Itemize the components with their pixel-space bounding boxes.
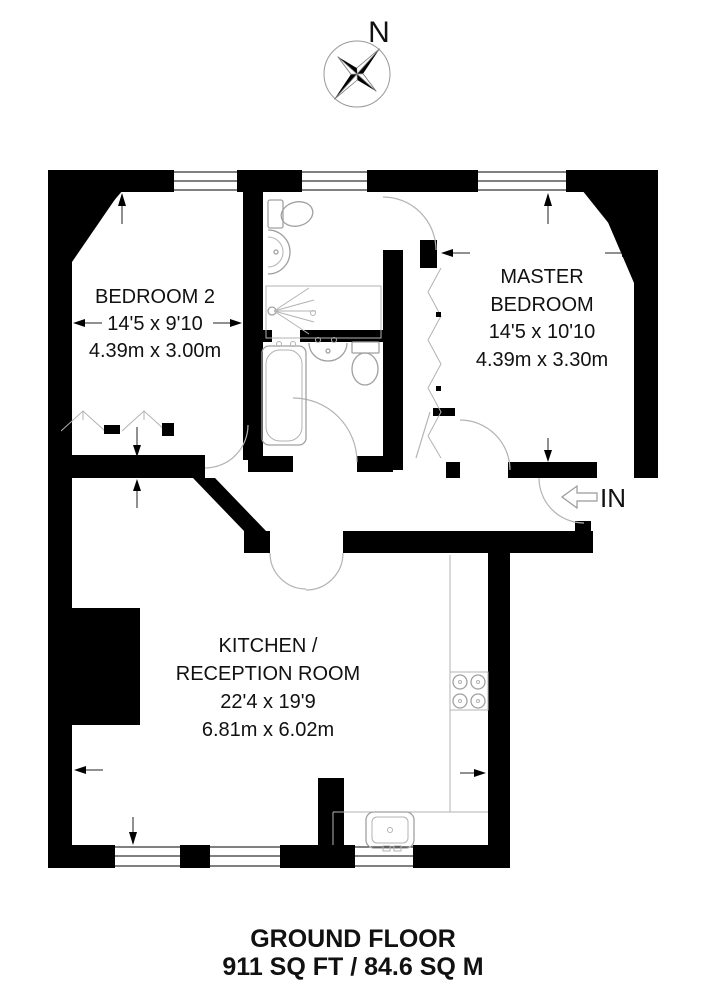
bedroom2-imperial-dims: 14'5 x 9'10 [107, 313, 203, 335]
toilet-icon [352, 342, 379, 385]
master-name-line1: MASTER [500, 266, 583, 288]
kitchen-metric-dims: 6.81m x 6.02m [202, 719, 334, 741]
floor-plan: N [0, 0, 707, 1000]
compass-rose-icon [324, 41, 390, 107]
window [174, 170, 237, 192]
floorplan-page: N [0, 0, 707, 1000]
door-arc [205, 425, 248, 468]
master-bedroom-label: MASTER BEDROOM 14'5 x 10'10 4.39m x 3.30… [476, 266, 608, 371]
door-arc [293, 398, 357, 462]
window [210, 845, 280, 868]
master-imperial-dims: 14'5 x 10'10 [489, 321, 596, 343]
in-arrow-icon [562, 486, 597, 508]
toilet-icon [268, 198, 315, 229]
master-wardrobe-icon [428, 268, 441, 458]
kitchen-name-line1: KITCHEN / [219, 635, 318, 657]
window [115, 845, 180, 868]
footer: GROUND FLOOR 911 SQ FT / 84.6 SQ M [222, 925, 483, 981]
hob-icon [450, 672, 488, 710]
kitchen-counter [333, 555, 488, 845]
floor-title: GROUND FLOOR [250, 925, 456, 953]
floor-area: 911 SQ FT / 84.6 SQ M [222, 953, 483, 981]
master-name-line2: BEDROOM [490, 294, 593, 316]
kitchen-imperial-dims: 22'4 x 19'9 [220, 691, 316, 713]
north-label: N [368, 16, 390, 49]
bedroom2-metric-dims: 4.39m x 3.00m [89, 340, 221, 362]
window [478, 170, 566, 192]
kitchen-label: KITCHEN / RECEPTION ROOM 22'4 x 19'9 6.8… [176, 635, 360, 741]
kitchen-name-line2: RECEPTION ROOM [176, 663, 360, 685]
cupboard-door-leaf [416, 412, 430, 458]
bedroom2-label: BEDROOM 2 14'5 x 9'10 4.39m x 3.00m [89, 286, 221, 362]
double-door-arc [270, 553, 306, 589]
in-label: IN [600, 483, 626, 513]
bedroom2-name: BEDROOM 2 [95, 286, 215, 308]
entrance-marker: IN [562, 483, 626, 513]
door-arc [460, 420, 510, 470]
basin-icon [268, 230, 290, 274]
bathtub-icon [262, 342, 306, 446]
window [302, 170, 367, 192]
master-metric-dims: 4.39m x 3.30m [476, 349, 608, 371]
double-door-arc [306, 553, 343, 590]
